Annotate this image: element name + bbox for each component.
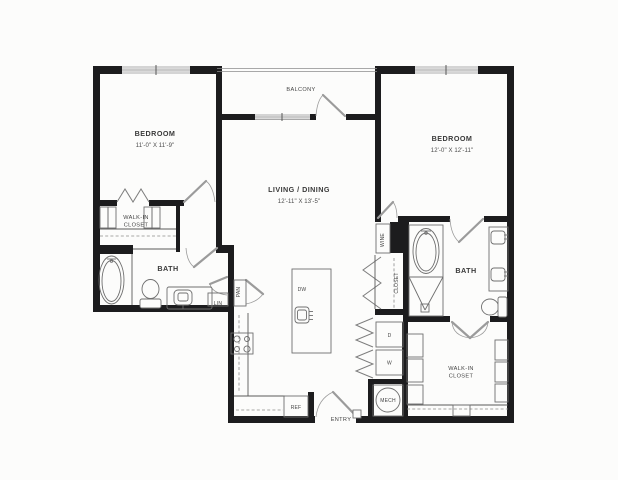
wall	[368, 416, 514, 423]
wall	[409, 316, 450, 322]
window-bedroom2	[415, 65, 478, 75]
pantry-label: PAN	[236, 287, 242, 298]
balcony-label: BALCONY	[286, 87, 315, 93]
refrigerator-label: REF	[291, 405, 302, 411]
door-bath2	[450, 219, 483, 242]
walkin1-label-line1: WALK-IN	[123, 215, 149, 221]
wall	[228, 245, 234, 309]
laundry-nook	[376, 322, 403, 375]
balcony-edge	[217, 69, 377, 72]
walkin2-label-line1: WALK-IN	[448, 366, 474, 372]
wall	[93, 200, 117, 206]
wall	[228, 309, 234, 423]
floor-plan: BEDROOM 11'-0" X 11'-9" BALCONY BEDROOM …	[0, 0, 618, 480]
window-balcony	[255, 113, 310, 121]
dishwasher-label: DW	[298, 287, 307, 293]
wall	[484, 216, 514, 222]
wall	[308, 392, 314, 423]
wall	[222, 114, 255, 120]
closet-shelf	[407, 359, 423, 382]
wall	[310, 114, 316, 120]
shower-icon	[409, 277, 443, 316]
window-bedroom1	[122, 65, 190, 75]
living-dining-label: LIVING / DINING	[268, 185, 330, 194]
stove-icon	[231, 333, 253, 354]
dryer-label: D	[388, 333, 392, 339]
closet-shelf	[495, 340, 508, 360]
closet-shelf	[495, 384, 508, 402]
bedroom1-label: BEDROOM	[135, 129, 176, 138]
floorplan-page: BEDROOM 11'-0" X 11'-9" BALCONY BEDROOM …	[0, 0, 618, 480]
wine-label: WINE	[380, 233, 386, 247]
walkin1-label-line2: CLOSET	[124, 223, 149, 229]
closet-shelf	[100, 207, 108, 228]
bedroom2-label: BEDROOM	[432, 134, 473, 143]
kitchen	[231, 269, 331, 417]
door-entry	[316, 392, 361, 418]
wall	[390, 222, 403, 253]
door-bath1	[186, 248, 217, 267]
bath1-label: BATH	[157, 264, 178, 273]
walkin2-label-line2: CLOSET	[449, 374, 474, 380]
bifold-laundry-door-2	[356, 350, 373, 378]
bathtub-icon	[99, 256, 124, 304]
accordion-hall-closet-door	[363, 257, 381, 309]
wall	[346, 114, 375, 120]
island-sink-icon	[295, 307, 313, 323]
wall	[93, 245, 133, 254]
door-walkin2-double	[452, 322, 488, 338]
wall	[403, 216, 409, 322]
bathtub-icon	[409, 225, 443, 277]
wall	[368, 379, 405, 384]
hall-closet-label: CLOSET	[394, 272, 400, 293]
closet-shelf	[407, 334, 423, 357]
kitchen-island	[292, 269, 331, 353]
closet-shelf	[152, 207, 160, 228]
entry-label: ENTRY	[331, 417, 352, 423]
door-balcony	[316, 95, 345, 116]
closet-divider	[453, 405, 470, 416]
washer-label: W	[387, 361, 392, 367]
door-jamb	[353, 410, 361, 418]
door-bedroom1	[184, 181, 215, 202]
bedroom2-dimensions: 12'-0" X 12'-11"	[431, 148, 473, 154]
closet-shelf	[108, 207, 116, 228]
toilet-icon	[482, 297, 508, 317]
toilet-icon	[140, 280, 161, 309]
mech-label: MECH	[380, 398, 396, 404]
wall	[216, 66, 222, 252]
wall	[375, 66, 381, 222]
labels: BEDROOM 11'-0" X 11'-9" BALCONY BEDROOM …	[123, 87, 476, 423]
bifold-closet1-door	[117, 189, 149, 202]
wall	[375, 309, 409, 315]
living-dining-dimensions: 12'-11" X 13'-5"	[278, 199, 320, 205]
bath1-fixtures	[99, 254, 228, 309]
closet-shelf	[407, 385, 423, 404]
hall-closet	[375, 255, 394, 309]
double-vanity-icon	[489, 227, 508, 291]
door-linen	[210, 277, 227, 295]
door-pantry	[246, 280, 263, 304]
wall	[176, 200, 180, 252]
bedroom1-dimensions: 11'-0" X 11'-9"	[136, 143, 175, 149]
bifold-laundry-door-1	[356, 318, 373, 347]
bath2-label: BATH	[455, 266, 476, 275]
linen-label: LIN	[214, 301, 223, 307]
closet-shelf	[495, 362, 508, 382]
